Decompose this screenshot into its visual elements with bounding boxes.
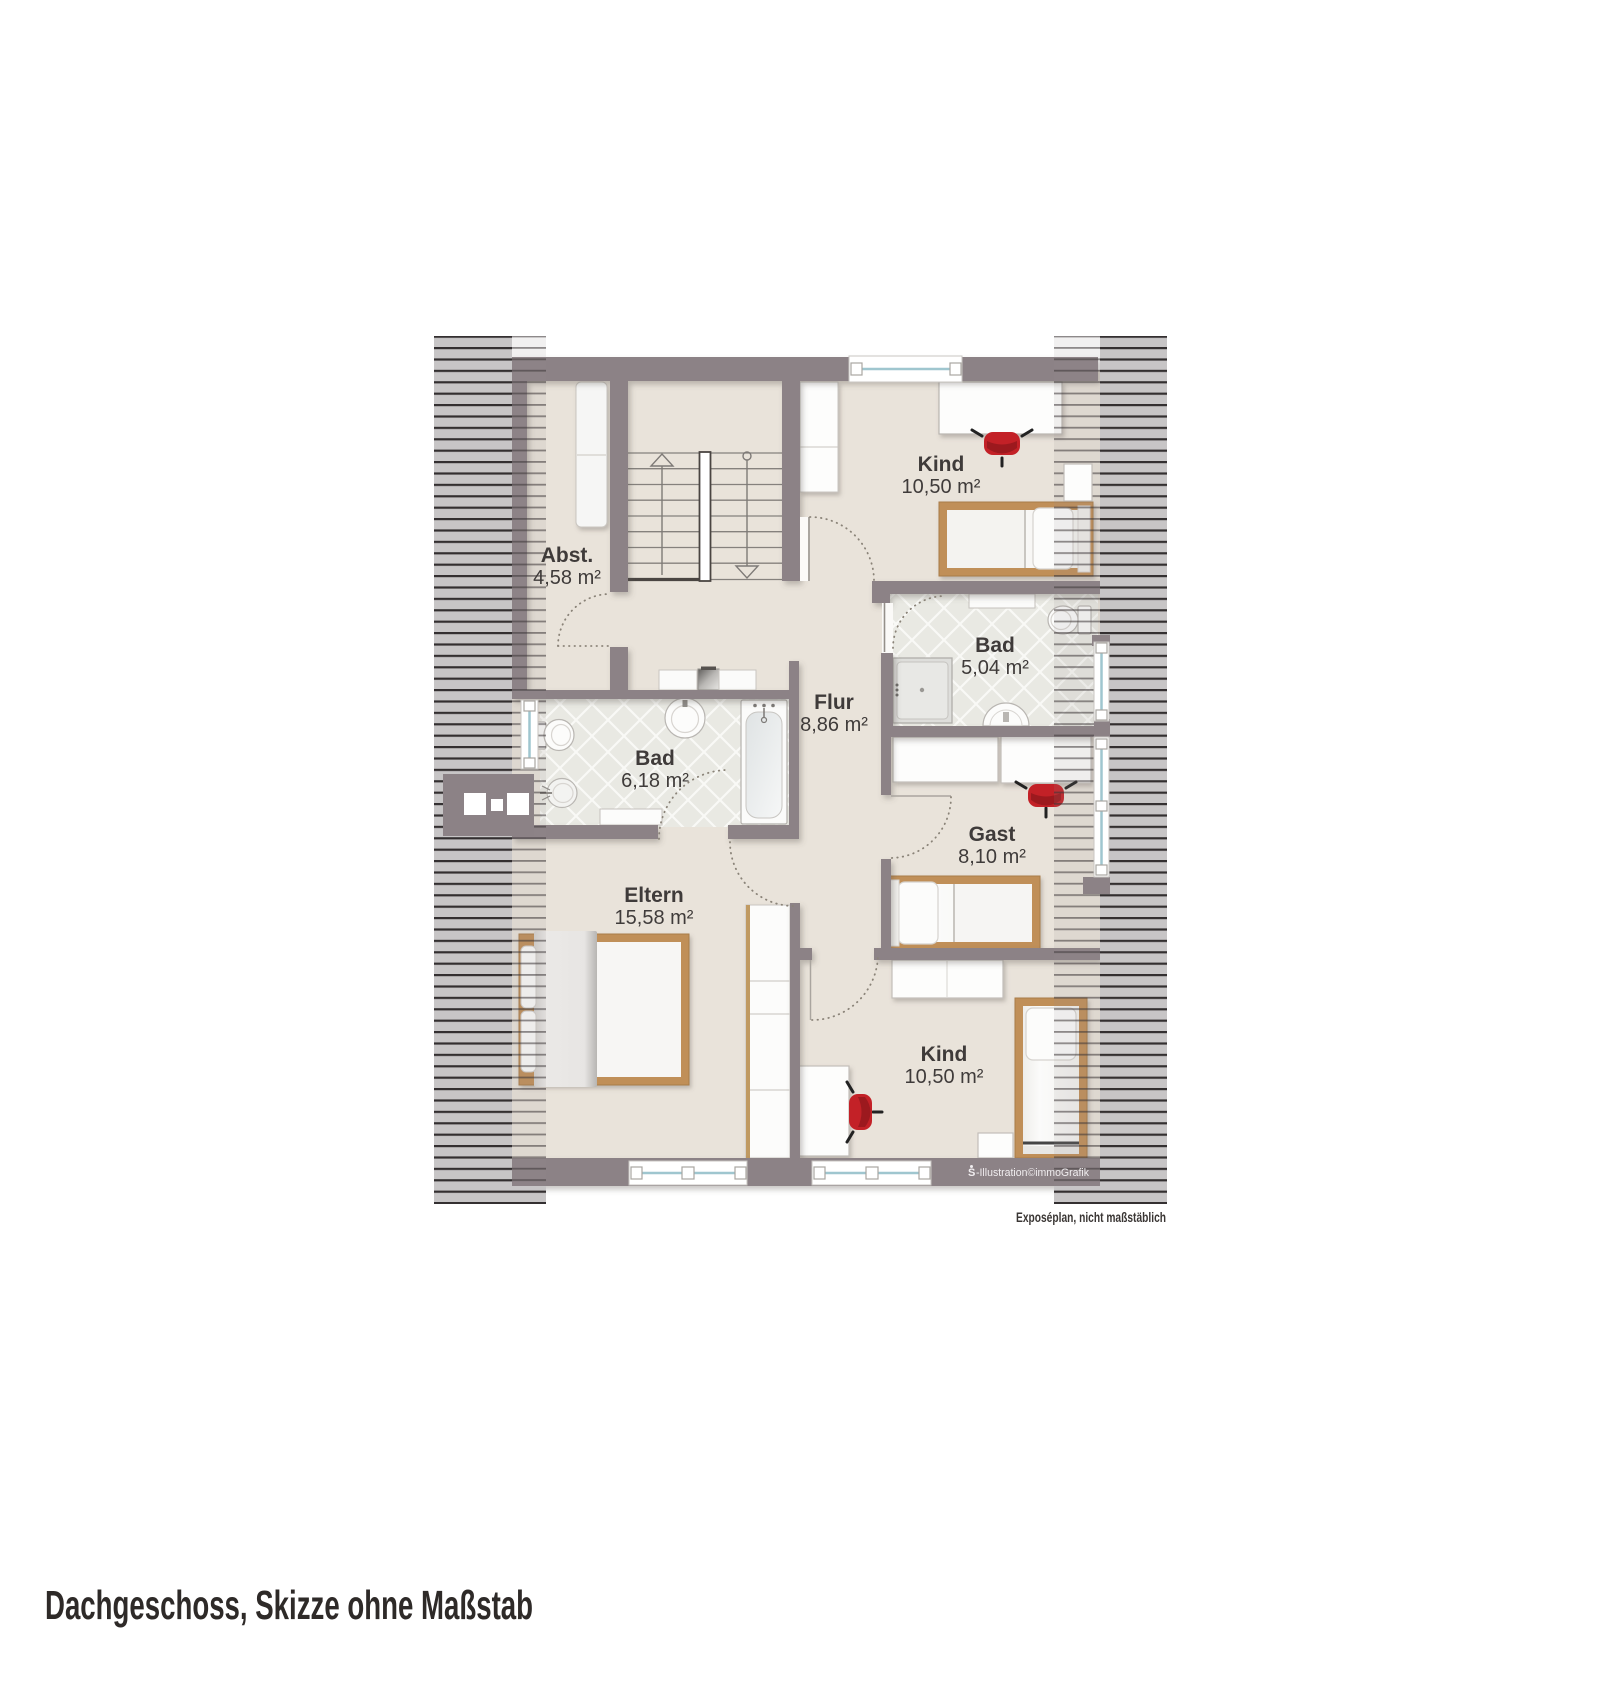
svg-text:8,10 m²: 8,10 m² [958,846,1026,868]
svg-text:Kind: Kind [918,453,965,476]
svg-text:Exposéplan, nicht maßstäblich: Exposéplan, nicht maßstäblich [1016,1210,1166,1225]
svg-text:15,58 m²: 15,58 m² [615,907,694,929]
svg-text:10,50 m²: 10,50 m² [905,1066,984,1088]
svg-text:Eltern: Eltern [624,884,684,907]
svg-text:S: S [968,1167,975,1179]
svg-text:-Illustration©immoGrafik: -Illustration©immoGrafik [976,1167,1089,1179]
svg-text:10,50 m²: 10,50 m² [902,476,981,498]
svg-text:4,58 m²: 4,58 m² [533,567,601,589]
svg-text:Dachgeschoss, Skizze ohne Maßs: Dachgeschoss, Skizze ohne Maßstab [45,1582,533,1628]
svg-text:Abst.: Abst. [541,544,594,567]
svg-text:6,18 m²: 6,18 m² [621,770,689,792]
svg-text:Kind: Kind [921,1043,968,1066]
svg-text:Bad: Bad [635,747,675,770]
svg-text:Flur: Flur [814,691,854,714]
svg-text:Gast: Gast [969,823,1016,846]
svg-text:5,04 m²: 5,04 m² [961,657,1029,679]
svg-text:8,86 m²: 8,86 m² [800,714,868,736]
svg-text:Bad: Bad [975,634,1015,657]
